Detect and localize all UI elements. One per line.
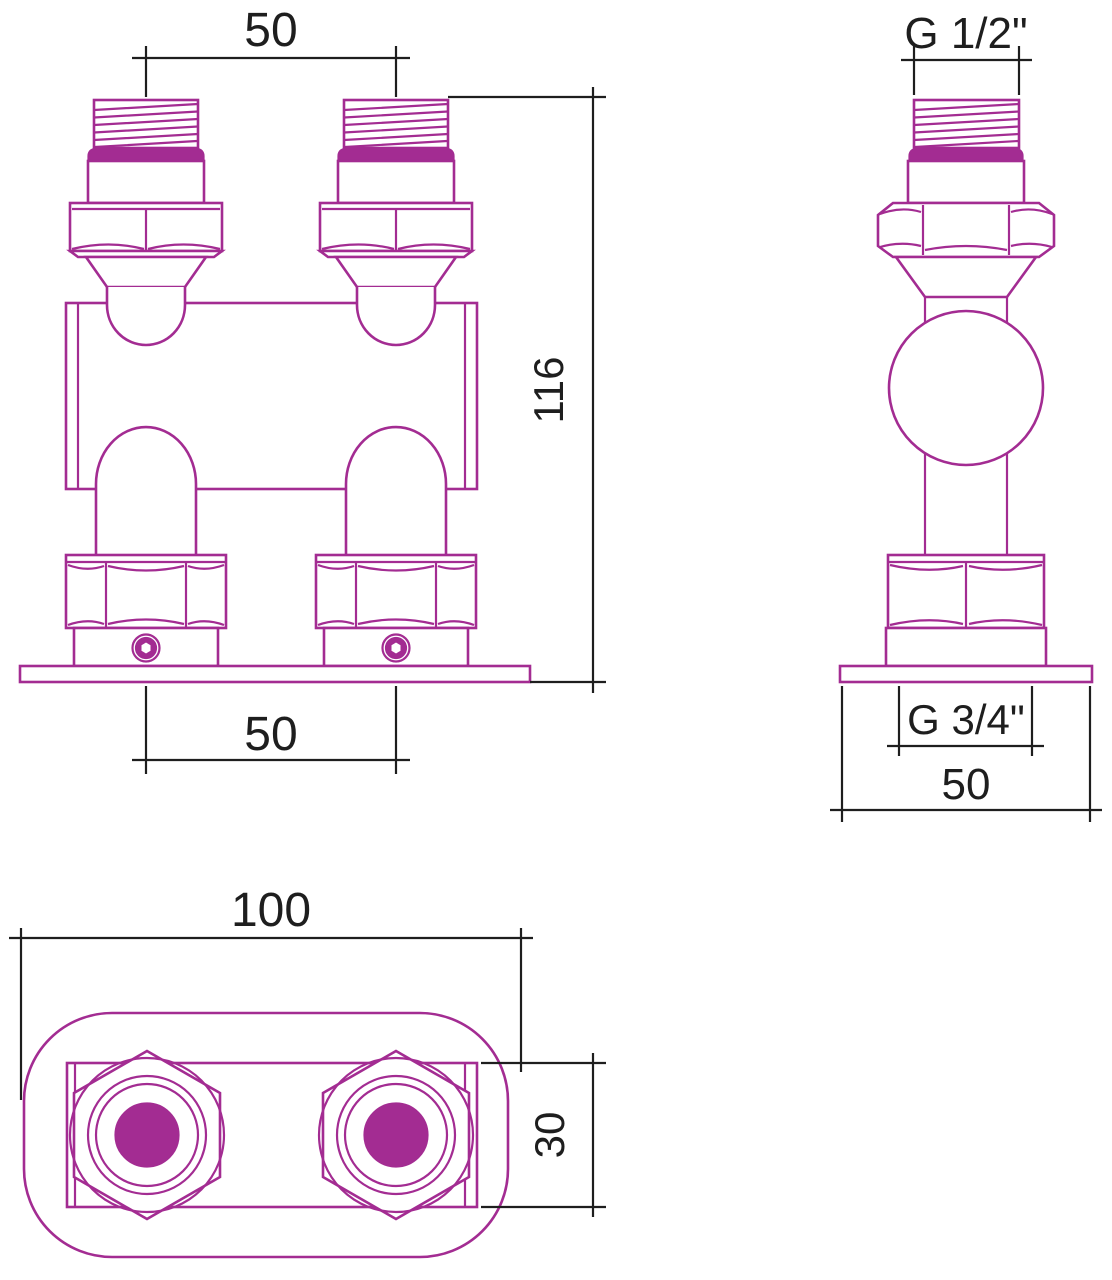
dim-height-label: 116 bbox=[525, 357, 572, 424]
dim-bottom-thread-label: G 3/4" bbox=[907, 696, 1025, 743]
bottom-view: 100 30 bbox=[9, 884, 606, 1257]
dim-top-thread: G 1/2" bbox=[901, 9, 1032, 95]
side-view: G 1/2" G 3/4" 50 bbox=[830, 9, 1102, 822]
mounting-plate-front bbox=[20, 666, 530, 682]
dim-top-spacing-label: 50 bbox=[244, 4, 297, 57]
valve-technical-drawing: 50 116 50 bbox=[0, 0, 1112, 1280]
dim-bottom-spacing: 50 bbox=[132, 686, 410, 774]
dim-top-thread-label: G 1/2" bbox=[904, 9, 1027, 58]
mounting-plate-side bbox=[840, 666, 1092, 682]
dim-bottom-thread: G 3/4" bbox=[887, 686, 1044, 756]
dim-side-base-width-label: 50 bbox=[942, 760, 991, 809]
valve-ball-body bbox=[889, 311, 1043, 465]
washer-band-side bbox=[909, 148, 1023, 161]
dim-top-spacing: 50 bbox=[132, 4, 410, 97]
upper-nut-side bbox=[878, 203, 1054, 257]
drawing-sheet: 50 116 50 bbox=[0, 0, 1112, 1280]
front-view: 50 116 50 bbox=[20, 4, 606, 774]
dim-bottom-spacing-label: 50 bbox=[244, 708, 297, 761]
dim-plate-width-label: 100 bbox=[231, 884, 311, 937]
dim-body-depth-label: 30 bbox=[526, 1112, 573, 1159]
